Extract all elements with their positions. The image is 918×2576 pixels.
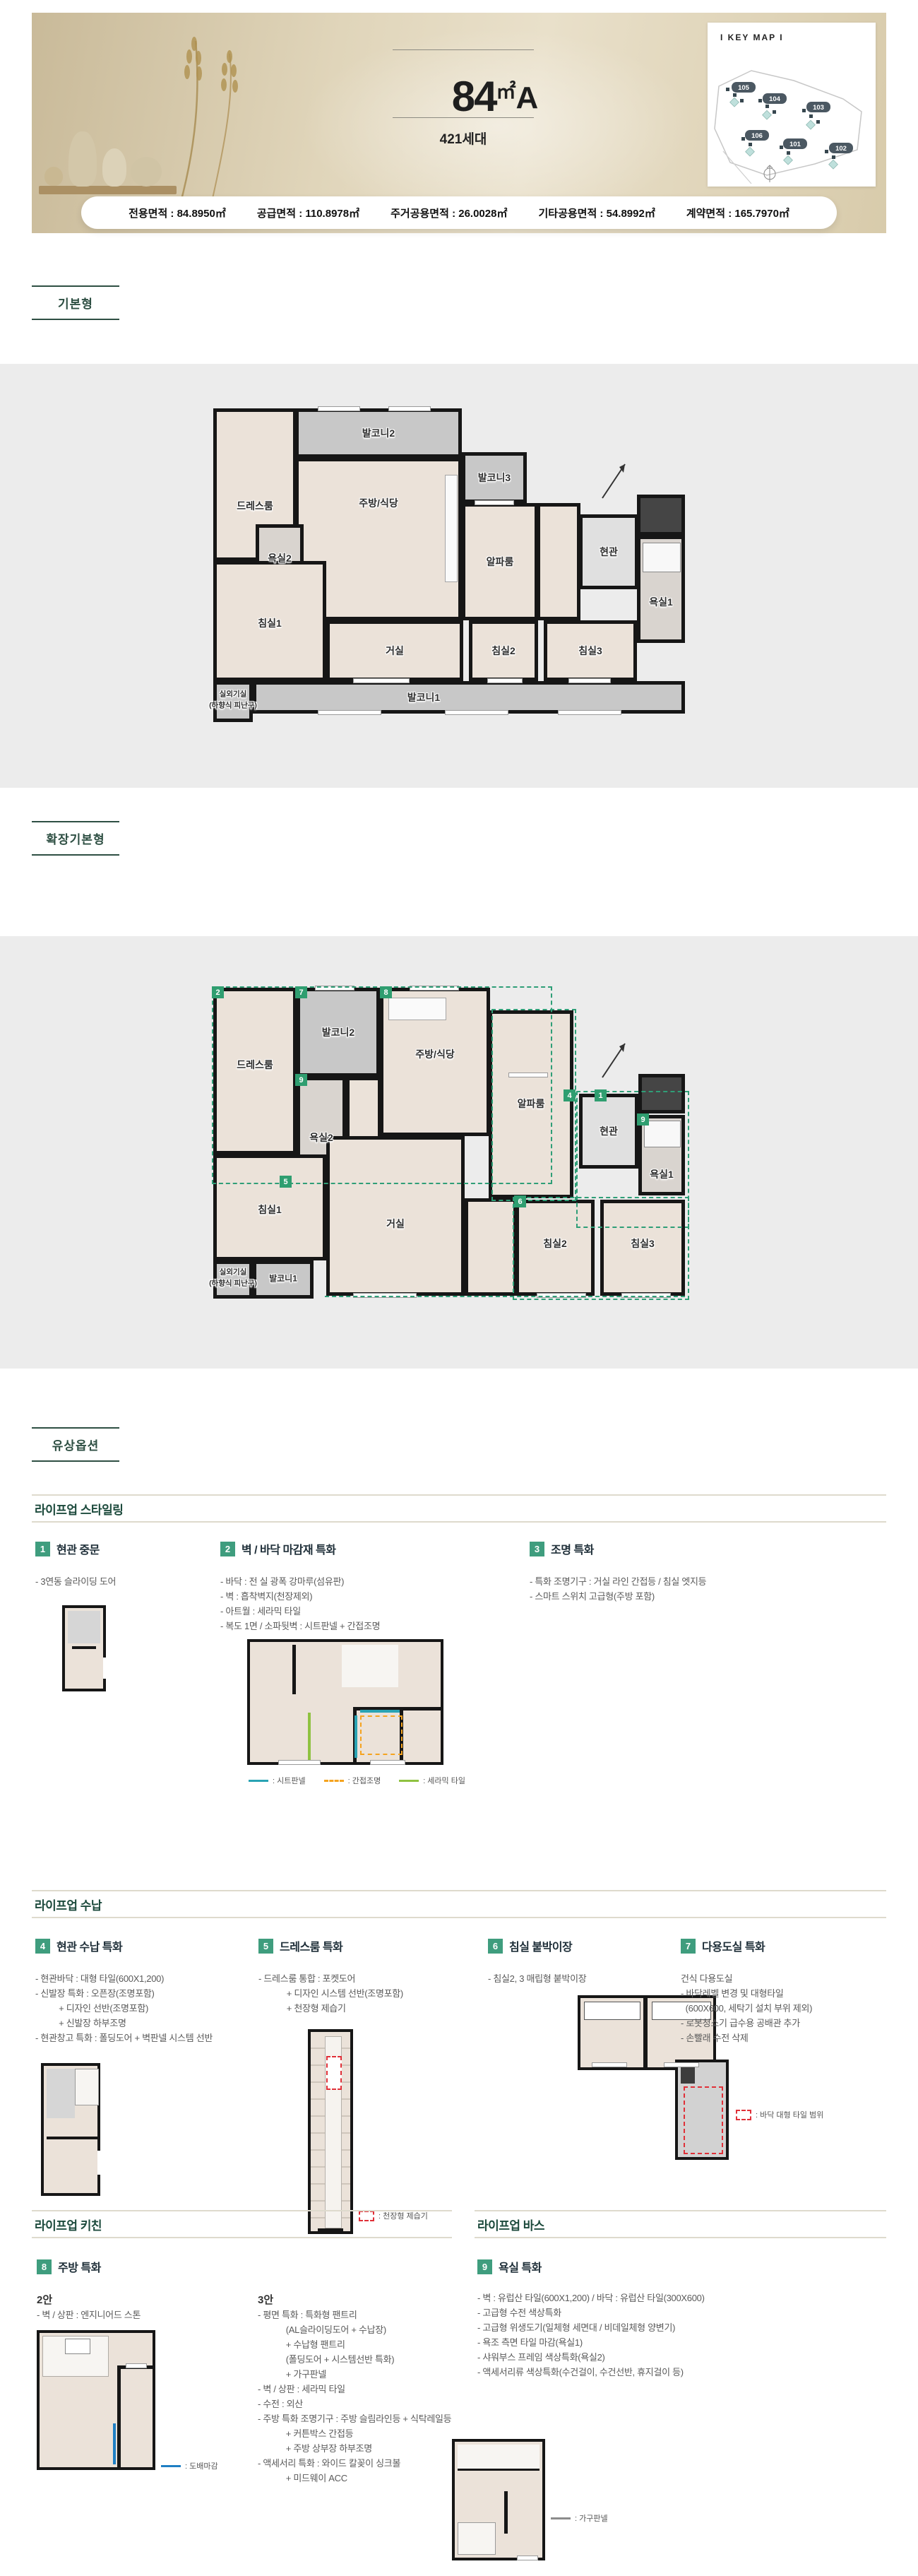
keymap-building-101: 101 bbox=[789, 141, 801, 148]
option-6-details: - 침실2, 3 매립형 붙박이장 bbox=[488, 1971, 657, 1986]
styling-section-title: 라이프업 스타일링 bbox=[32, 1500, 123, 1518]
label-bath2: 욕실2 bbox=[268, 551, 292, 565]
plan-badge-9a: 9 bbox=[295, 1074, 307, 1086]
ceramic-tile-highlight bbox=[308, 1713, 311, 1761]
sheet-panel-highlight bbox=[360, 1710, 400, 1713]
option-7-details: 건식 다용도실 - 바닥레벨 변경 및 대형타일 (600X600, 세탁기 설… bbox=[681, 1971, 878, 2045]
sheet-panel-highlight2 bbox=[354, 1715, 357, 1758]
kitchen-counter bbox=[445, 475, 458, 582]
entrance-arrow-icon bbox=[597, 1036, 632, 1079]
option-item-8-head: 8 주방 특화 bbox=[37, 2258, 101, 2275]
label-alpha: 알파룸 bbox=[487, 555, 514, 569]
option-8-title: 주방 특화 bbox=[58, 2258, 101, 2275]
room-balcony1 bbox=[253, 681, 685, 714]
label-bed1: 침실1 bbox=[258, 1203, 282, 1217]
area-common-residential: 주거공용면적 : 26.0028㎡ bbox=[391, 206, 507, 220]
kitchen-plan3-label: 3안 bbox=[258, 2292, 273, 2307]
basic-floor-plan: 발코니2 드레스룸 욕실2 주방/식당 발코니3 알파룸 현관 욕실1 침실1 … bbox=[212, 390, 699, 750]
kitchen-plan2-label: 2안 bbox=[37, 2292, 52, 2307]
option-6-badge: 6 bbox=[488, 1939, 503, 1954]
vase-small bbox=[44, 167, 63, 186]
option-item-1-head: 1 현관 중문 bbox=[35, 1540, 100, 1557]
vase-mid bbox=[102, 148, 126, 187]
household-count: 421세대 bbox=[393, 129, 534, 148]
option-2-badge: 2 bbox=[220, 1542, 235, 1556]
kitchen-plan3-details: - 평면 특화 : 특화형 팬트리 (AL슬라이딩도어 + 수납장) + 수납형… bbox=[258, 2308, 455, 2486]
section-label-paid-options: 유상옵션 bbox=[32, 1427, 119, 1462]
large-tile-zone bbox=[684, 2086, 723, 2154]
option-5-badge: 5 bbox=[258, 1939, 273, 1954]
label-outdoor-unit: 실외기실 bbox=[220, 1267, 247, 1277]
label-living: 거실 bbox=[386, 644, 404, 658]
option-5-mini-plan bbox=[308, 2029, 353, 2234]
option-1-title: 현관 중문 bbox=[56, 1540, 100, 1557]
label-entrance: 현관 bbox=[600, 545, 618, 559]
option-item-4-head: 4 현관 수납 특화 bbox=[35, 1937, 122, 1954]
pottery-shelf bbox=[39, 186, 177, 194]
photo-highlight bbox=[300, 27, 696, 225]
option-9-details: - 벽 : 유럽산 타일(600X1,200) / 바닥 : 유럽산 타일(30… bbox=[477, 2291, 873, 2380]
legend-indirect-light: : 간접조명 bbox=[324, 1775, 381, 1786]
option-4-mini-plan bbox=[41, 2063, 100, 2196]
keymap-site-plan: 105 104 103 106 101 102 bbox=[708, 47, 876, 185]
label-bed2: 침실2 bbox=[491, 644, 515, 658]
option-zone-alpha bbox=[491, 1009, 576, 1201]
unit-size: 84 bbox=[452, 73, 496, 120]
unit-size-unit: ㎡ bbox=[496, 81, 515, 102]
label-outdoor-unit-sub: (하향식 피난구) bbox=[209, 700, 257, 711]
area-info-bar: 전용면적 : 84.8950㎡ 공급면적 : 110.8978㎡ 주거공용면적 … bbox=[81, 196, 837, 229]
label-bed1: 침실1 bbox=[258, 616, 282, 630]
plan-badge-5: 5 bbox=[280, 1176, 292, 1188]
bath-section-header: 라이프업 바스 bbox=[475, 2210, 886, 2238]
label-bath1: 욕실1 bbox=[649, 595, 673, 609]
unit-title: 84㎡A bbox=[368, 72, 622, 121]
styling-section-header: 라이프업 스타일링 bbox=[32, 1494, 886, 1523]
option-zone-bedrooms bbox=[513, 1197, 689, 1300]
option-2-title: 벽 / 바닥 마감재 특화 bbox=[242, 1540, 336, 1557]
section-label-extended: 확장기본형 bbox=[32, 821, 119, 856]
option-3-badge: 3 bbox=[530, 1542, 544, 1556]
entrance-closet bbox=[637, 495, 685, 536]
label-balcony1: 발코니1 bbox=[407, 690, 440, 704]
bath-section-title: 라이프업 바스 bbox=[475, 2216, 544, 2233]
option-7-title: 다용도실 특화 bbox=[702, 1937, 765, 1954]
keymap-building-104: 104 bbox=[769, 95, 781, 103]
option-4-badge: 4 bbox=[35, 1939, 50, 1954]
plan-badge-6: 6 bbox=[514, 1195, 526, 1207]
label-outdoor-unit: 실외기실 bbox=[220, 689, 247, 699]
option-2-mini-plan bbox=[247, 1639, 443, 1765]
label-outdoor-unit-sub: (하향식 피난구) bbox=[209, 1278, 257, 1289]
title-rule-bottom bbox=[393, 117, 534, 118]
label-balcony2: 발코니2 bbox=[362, 426, 395, 440]
keymap-building-102: 102 bbox=[835, 145, 847, 153]
kitchen-section-title: 라이프업 키친 bbox=[32, 2216, 102, 2233]
option-5-details: - 드레스룸 통합 : 포켓도어 + 디자인 시스템 선반(조명포함) + 천장… bbox=[258, 1971, 463, 2016]
option-1-details: - 3연동 슬라이딩 도어 bbox=[35, 1574, 205, 1589]
option-5-title: 드레스룸 특화 bbox=[280, 1937, 342, 1954]
area-supply: 공급면적 : 110.8978㎡ bbox=[257, 206, 359, 220]
plan-badge-2: 2 bbox=[212, 986, 224, 998]
room-corridor bbox=[537, 503, 580, 620]
kitchen-plan2-details: - 벽 / 상판 : 엔지니어드 스톤 bbox=[37, 2308, 234, 2322]
unit-plan-page: 84㎡A 421세대 I KEY MAP I bbox=[0, 0, 918, 2576]
vase-tall bbox=[68, 131, 97, 187]
option-6-title: 침실 붙박이장 bbox=[509, 1937, 572, 1954]
keymap-building-105: 105 bbox=[738, 84, 750, 92]
label-balcony3: 발코니3 bbox=[478, 471, 511, 485]
option-item-9-head: 9 욕실 특화 bbox=[477, 2258, 542, 2275]
room-corridor2 bbox=[465, 1198, 517, 1296]
plan-badge-9b: 9 bbox=[637, 1113, 649, 1125]
option-9-title: 욕실 특화 bbox=[499, 2258, 542, 2275]
entrance-arrow-icon bbox=[597, 457, 632, 500]
plan-badge-1: 1 bbox=[595, 1089, 607, 1101]
section-label-basic: 기본형 bbox=[32, 285, 119, 320]
option-7-mini-plan bbox=[675, 2060, 729, 2160]
option-7-legend: : 바닥 대형 타일 범위 bbox=[736, 2109, 823, 2120]
kitchen-plan3-legend: : 가구판넬 bbox=[551, 2512, 608, 2524]
option-4-details: - 현관바닥 : 대형 타일(600X1,200) - 신발장 특화 : 오픈장… bbox=[35, 1971, 240, 2045]
dehumidifier-zone bbox=[326, 2056, 342, 2090]
title-rule-top bbox=[393, 49, 534, 50]
option-1-badge: 1 bbox=[35, 1542, 50, 1556]
label-dressroom: 드레스룸 bbox=[237, 499, 273, 513]
label-kitchen: 주방/식당 bbox=[359, 496, 398, 510]
option-item-3-head: 3 조명 특화 bbox=[530, 1540, 594, 1557]
option-item-6-head: 6 침실 붙박이장 bbox=[488, 1937, 572, 1954]
indirect-light-highlight bbox=[360, 1715, 403, 1755]
option-9-badge: 9 bbox=[477, 2259, 492, 2274]
legend-sheet-panel: : 시트판넬 bbox=[249, 1775, 306, 1786]
option-3-details: - 특화 조명기구 : 거실 라인 간접등 / 침실 엣지등 - 스마트 스위치… bbox=[530, 1574, 869, 1604]
option-7-badge: 7 bbox=[681, 1939, 696, 1954]
extended-floor-plan: 2 7 8 9 5 4 1 9 6 드레스룸 발코니2 주방/식당 욕실2 알파… bbox=[212, 969, 699, 1340]
option-3-title: 조명 특화 bbox=[551, 1540, 594, 1557]
wallpaper-finish-highlight bbox=[113, 2423, 116, 2464]
kitchen-plan3-mini-plan bbox=[452, 2439, 545, 2560]
option-2-legend: : 시트판넬 : 간접조명 : 세라믹 타일 bbox=[249, 1775, 465, 1786]
option-item-7-head: 7 다용도실 특화 bbox=[681, 1937, 765, 1954]
option-4-title: 현관 수납 특화 bbox=[56, 1937, 122, 1954]
storage-section-title: 라이프업 수납 bbox=[32, 1896, 102, 1913]
storage-section-header: 라이프업 수납 bbox=[32, 1890, 886, 1918]
label-living: 거실 bbox=[386, 1217, 405, 1231]
area-common-other: 기타공용면적 : 54.8992㎡ bbox=[538, 206, 655, 220]
option-8-badge: 8 bbox=[37, 2259, 52, 2274]
keymap-card: I KEY MAP I 105 104 bbox=[708, 23, 876, 187]
kitchen-section-header: 라이프업 키친 bbox=[32, 2210, 452, 2238]
vase-round bbox=[131, 157, 162, 187]
keymap-building-103: 103 bbox=[813, 104, 824, 112]
option-1-mini-plan bbox=[62, 1605, 106, 1691]
legend-ceramic-tile: : 세라믹 타일 bbox=[399, 1775, 465, 1786]
keymap-title: I KEY MAP I bbox=[720, 33, 784, 42]
kitchen-plan2-mini-plan bbox=[37, 2330, 155, 2470]
keymap-building-106: 106 bbox=[751, 132, 763, 140]
builtin-closet-left bbox=[584, 2002, 640, 2020]
option-item-5-head: 5 드레스룸 특화 bbox=[258, 1937, 342, 1954]
plan-badge-4: 4 bbox=[564, 1089, 576, 1101]
unit-type-suffix: A bbox=[515, 81, 538, 115]
option-zone-bottom-line bbox=[325, 1296, 685, 1297]
option-item-2-head: 2 벽 / 바닥 마감재 특화 bbox=[220, 1540, 336, 1557]
plan-badge-8: 8 bbox=[380, 986, 392, 998]
plan-badge-7: 7 bbox=[295, 986, 307, 998]
label-bed3: 침실3 bbox=[578, 644, 602, 658]
option-2-details: - 바닥 : 전 실 광폭 강마루(섬유판) - 벽 : 흡착벽지(천장제외) … bbox=[220, 1574, 503, 1633]
area-exclusive: 전용면적 : 84.8950㎡ bbox=[129, 206, 226, 220]
label-balcony1: 발코니1 bbox=[269, 1272, 297, 1284]
bathtub bbox=[643, 543, 681, 572]
kitchen-plan2-legend: : 도배마감 bbox=[161, 2460, 218, 2471]
area-contract: 계약면적 : 165.7970㎡ bbox=[686, 206, 789, 220]
